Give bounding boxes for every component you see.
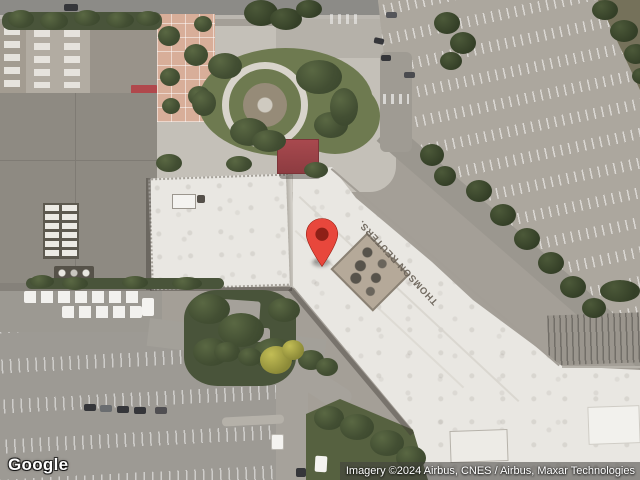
building-shadow [146, 178, 151, 290]
tree [592, 0, 618, 20]
industrial-roof-units-left [0, 24, 26, 94]
car [64, 4, 78, 11]
industrial-roof-brown [90, 24, 157, 94]
roof-structure-small [172, 194, 196, 209]
industrial-roof-large [0, 93, 157, 291]
car [296, 468, 306, 477]
car [404, 72, 415, 78]
tree [172, 277, 202, 290]
tree [208, 53, 242, 79]
tree [434, 12, 460, 34]
tree-line [490, 204, 516, 226]
tree [434, 166, 456, 186]
tree [136, 11, 160, 26]
tree [610, 20, 638, 42]
tree [8, 10, 34, 28]
tree [192, 90, 216, 116]
car [381, 55, 391, 61]
parking-strip-southeast [547, 312, 640, 365]
tree-line [560, 276, 586, 298]
tree [420, 144, 444, 166]
building-edge-line [562, 366, 640, 368]
white-truck [315, 456, 328, 473]
tree [238, 348, 262, 366]
tree [40, 12, 68, 30]
tree [440, 52, 462, 70]
crosswalk-north [383, 94, 409, 104]
pin-dot [315, 228, 328, 241]
roof-panel-east [587, 405, 640, 445]
tree [296, 60, 342, 94]
tree-line [538, 252, 564, 274]
car [386, 12, 397, 18]
attribution-bar[interactable]: Imagery ©2024 Airbus, CNES / Airbus, Max… [340, 462, 640, 480]
car [134, 407, 146, 414]
tree [252, 130, 286, 152]
roof-outline-structure [449, 429, 508, 463]
tree [600, 280, 640, 302]
white-van [271, 434, 284, 450]
tree [450, 32, 476, 54]
industrial-roof-units-mid [26, 24, 90, 94]
truck-row [24, 291, 142, 303]
truck [142, 298, 154, 316]
tree [184, 44, 208, 66]
google-logo[interactable]: Google [8, 455, 68, 475]
tree [160, 68, 180, 86]
tree [304, 162, 328, 178]
tree [106, 12, 134, 28]
car [117, 406, 129, 413]
location-pin-icon[interactable] [304, 217, 340, 268]
roof-structure-dark [197, 195, 205, 203]
tree [158, 26, 180, 46]
tree [330, 88, 358, 126]
tree [30, 275, 54, 288]
tree [340, 414, 374, 440]
tree [316, 358, 338, 376]
tree [122, 276, 148, 289]
skylight-grid [43, 203, 79, 259]
pin-body [306, 219, 338, 267]
car [100, 405, 112, 412]
tree [226, 156, 252, 172]
crosswalk-plaza [330, 14, 360, 24]
tree [74, 10, 100, 26]
tree [62, 277, 88, 290]
tree [194, 16, 212, 32]
tree-line [466, 180, 492, 202]
tree [162, 98, 180, 114]
tree [296, 0, 322, 18]
tree-line [514, 228, 540, 250]
yellow-tree [282, 340, 304, 360]
tree-line [582, 298, 606, 318]
office-roof-west-wing [148, 174, 292, 291]
tree [156, 154, 182, 172]
tree [214, 342, 240, 362]
tree [268, 298, 300, 322]
car [84, 404, 96, 411]
car [155, 407, 167, 414]
truck-row [62, 306, 142, 318]
satellite-map-canvas[interactable]: THOMSON REUTERS. [0, 0, 640, 480]
